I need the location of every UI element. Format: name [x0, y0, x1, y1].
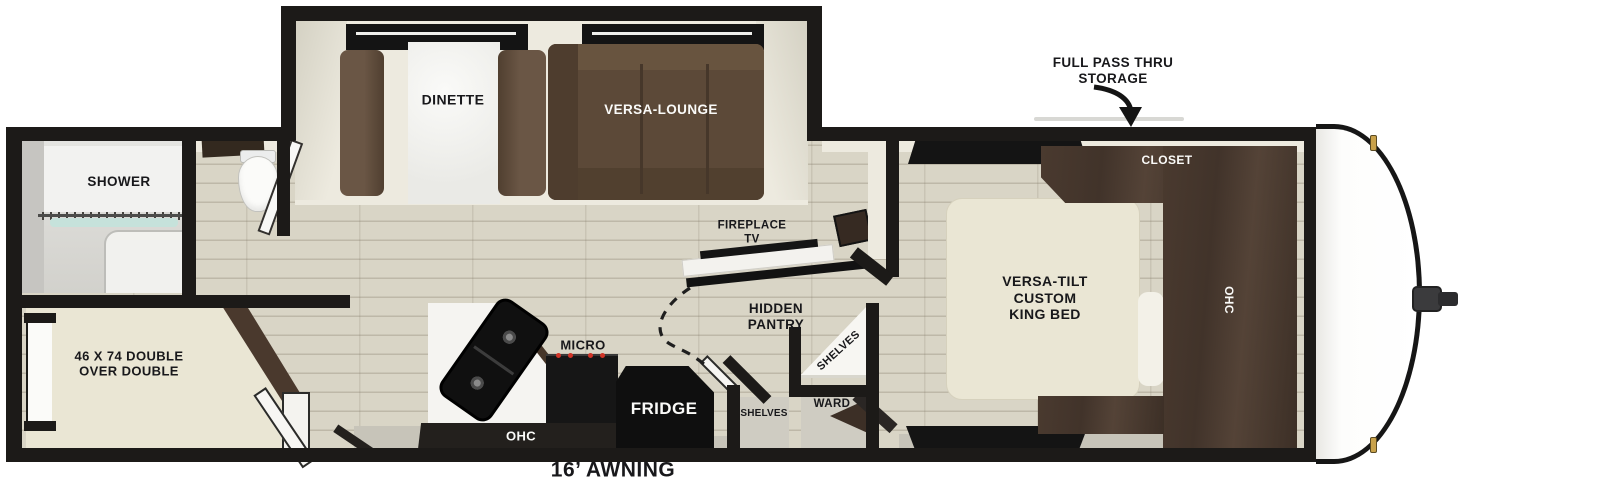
range-micro-unit [546, 354, 618, 424]
dinette-label: DINETTE [422, 92, 485, 109]
versa-lounge-label: VERSA-LOUNGE [604, 102, 718, 118]
shower-room-right-wall [182, 127, 196, 305]
dinette-bench-left [340, 50, 384, 196]
bunk-label: 46 X 74 DOUBLEOVER DOUBLE [75, 349, 184, 380]
bunk-room-top-wall [6, 295, 350, 308]
shelves-alcove-floor [740, 397, 789, 448]
shower-curtain-rod [38, 214, 184, 217]
bunk-window-cap-bottom [24, 421, 56, 431]
pass-thru-door-seam [1034, 117, 1184, 121]
hitch-arm [1438, 292, 1458, 306]
sofa-cushion-divider [640, 64, 643, 194]
bunk-window-cap-top [24, 313, 56, 323]
window-glare [356, 32, 516, 35]
bed-foot-cabinet [1038, 396, 1164, 434]
slideout-right-wall [807, 6, 822, 141]
bedroom-ohc-label: OHC [1222, 286, 1236, 314]
bedroom-wall-face [868, 141, 886, 259]
hidden-pantry-label: HIDDENPANTRY [748, 301, 804, 333]
pass-thru-arrow [1094, 87, 1131, 111]
pantry-wall-d [866, 303, 879, 462]
dinette-bench-right [498, 50, 546, 196]
pass-thru-storage-label: FULL PASS THRUSTORAGE [1053, 55, 1174, 87]
sink-basin-divider [473, 345, 514, 375]
slideout-top-wall [281, 6, 822, 21]
left-wall [6, 127, 22, 462]
stove-burner [588, 353, 593, 358]
window-glare [592, 32, 752, 35]
clearance-light-bottom [1370, 437, 1377, 453]
fireplace-tv-label: FIREPLACETV [718, 219, 787, 246]
sofa-back-band [578, 44, 764, 70]
top-wall-left-segment [6, 127, 295, 141]
fridge-label: FRIDGE [631, 399, 698, 419]
shower-pan [104, 230, 182, 293]
sofa-front-band [578, 168, 764, 200]
sink-drain [468, 374, 486, 392]
shower-glass [50, 218, 178, 227]
king-bed-label: VERSA-TILTCUSTOMKING BED [1002, 273, 1087, 323]
shelves-alcove-label: SHELVES [740, 408, 787, 420]
stove-burner [600, 353, 605, 358]
sofa-armrest-left [548, 44, 578, 200]
front-cap [1316, 124, 1422, 464]
stove-burner [568, 353, 573, 358]
stove-burner [556, 353, 561, 358]
awning-label: 16’ AWNING [551, 459, 675, 484]
shower-label: SHOWER [87, 174, 150, 190]
sofa-cushion-divider [706, 64, 709, 194]
bunk-window [26, 322, 52, 422]
sink-drain [500, 328, 518, 346]
bedroom-left-wall [886, 127, 899, 277]
versa-lounge-sofa [548, 44, 764, 200]
dinette-table [408, 42, 500, 204]
shower-wall-shade [20, 141, 44, 293]
clearance-light-top [1370, 135, 1377, 151]
micro-label: MICRO [560, 337, 605, 352]
closet-label: CLOSET [1141, 153, 1192, 167]
floorplan-canvas: FULL PASS THRUSTORAGE DINETTE VERSA-LOUN… [0, 0, 1600, 488]
shower-room [20, 141, 182, 293]
top-wall-right-segment [808, 127, 1318, 141]
slideout-left-wall [281, 6, 296, 141]
bathroom-right-wall [277, 127, 290, 236]
king-bed-tilt-section [1138, 292, 1164, 386]
ward-label: WARD [814, 398, 851, 412]
kitchen-ohc-label: OHC [506, 428, 536, 443]
